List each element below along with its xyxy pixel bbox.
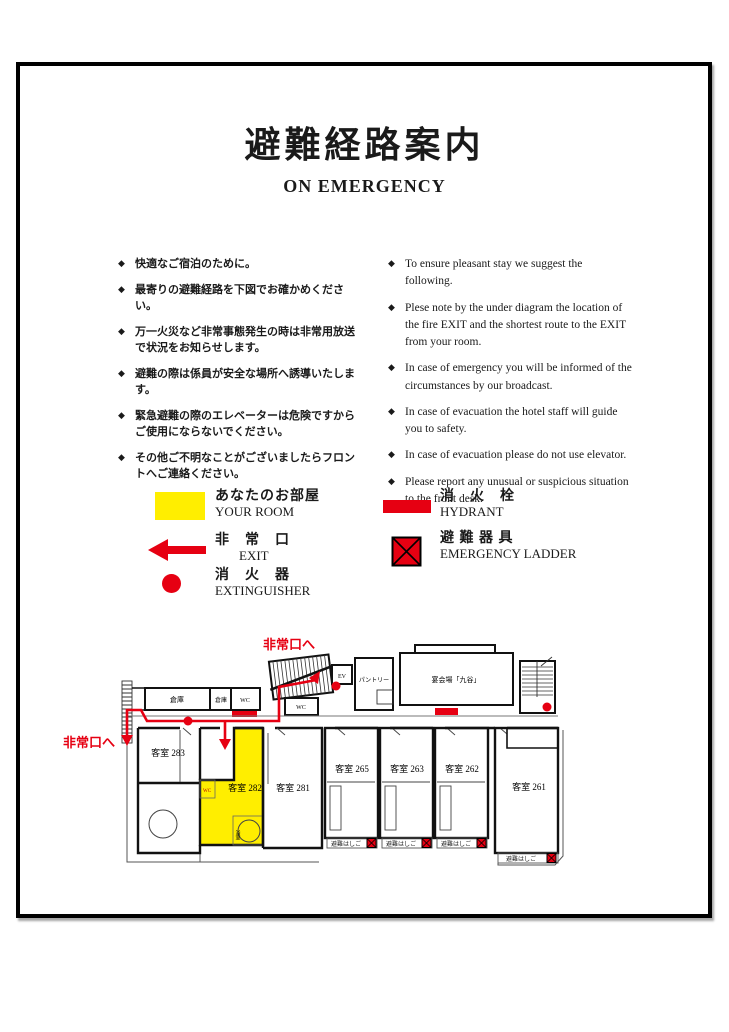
room-262-label: 客室 262 [445, 763, 479, 774]
room-263-label: 客室 263 [390, 763, 424, 774]
central-stairs [267, 654, 335, 700]
room-281-label: 客室 281 [276, 782, 310, 793]
notice-en-5: In case of evacuation please do not use … [388, 447, 632, 464]
notice-ja-4: 避難の際は係員が安全な場所へ誘導いたします。 [118, 366, 362, 399]
ladder-label-2: 避難はしご [386, 840, 416, 848]
ladder-platforms: 避難はしご 避難はしご 避難はしご 避難はしご [327, 838, 558, 863]
notice-ja-3: 万一火災など非常事態発生の時は非常用放送で状況をお知らせします。 [118, 324, 362, 357]
evacuation-poster: 避難経路案内 ON EMERGENCY 快適なご宿泊のために。 最寄りの避難経路… [0, 0, 729, 1032]
elevator-label: EV [338, 674, 347, 680]
page-title: 避難経路案内 [0, 116, 729, 168]
extinguisher-dot-ev [332, 682, 341, 691]
notices-english: To ensure pleasant stay we suggest the f… [388, 256, 632, 517]
ladder-box-icon-1 [367, 839, 376, 848]
room-282-label: 客室 282 [228, 782, 262, 793]
legend-extinguisher-ja: 消 火 器 [215, 568, 310, 583]
notices-japanese: 快適なご宿泊のために。 最寄りの避難経路を下図でお確かめください。 万一火災など… [118, 256, 362, 492]
notice-en-3: In case of emergency you will be informe… [388, 360, 632, 395]
page-subtitle: ON EMERGENCY [0, 176, 729, 197]
extinguisher-dot-right [543, 703, 552, 712]
storage2-label: 倉庫 [215, 696, 227, 704]
legend-ladder-en: EMERGENCY LADDER [440, 546, 576, 562]
exit-text-left: 非常口へ [63, 735, 115, 750]
hydrant-icon [383, 500, 431, 513]
storage1-label: 倉庫 [170, 695, 184, 704]
extinguisher-icon [162, 574, 181, 593]
legend-exit: 非 常 口 EXIT [215, 533, 290, 564]
legend-ladder-ja: 避 難 器 具 [440, 531, 576, 546]
banquet-hall [400, 645, 513, 705]
hydrant-bar-2 [435, 708, 458, 715]
pantry-label: パントリー [359, 677, 389, 684]
legend-your-room-swatch [155, 492, 205, 520]
room-265: 客室 265 [325, 728, 378, 838]
emergency-ladder-icon [391, 536, 422, 567]
route-arrow-left-exit [121, 735, 133, 746]
exit-arrow-shaft [166, 546, 206, 554]
exit-arrow-icon [148, 539, 206, 561]
room-262: 客室 262 [435, 728, 488, 838]
room-261: 客室 261 [495, 728, 558, 853]
room-281: 客室 281 [263, 728, 322, 848]
legend-your-room-en: YOUR ROOM [215, 504, 320, 520]
notice-ja-5: 緊急避難の際のエレベーターは危険ですからご使用にならないでください。 [118, 408, 362, 441]
pantry-closet [377, 690, 393, 704]
extinguisher-dot-corridor [184, 717, 193, 726]
legend-extinguisher: 消 火 器 EXTINGUISHER [215, 568, 310, 599]
ladder-label-3: 避難はしご [441, 840, 471, 848]
notice-ja-1: 快適なご宿泊のために。 [118, 256, 362, 273]
ladder-box-icon-4 [547, 854, 556, 863]
ladder-box-icon-3 [477, 839, 486, 848]
banquet-label: 宴会場「九谷」 [432, 675, 481, 684]
floor-plan: 倉庫 倉庫 WC EV WC パントリー 宴会場「九谷」 [55, 634, 575, 879]
notice-en-2: Plese note by the under diagram the loca… [388, 300, 632, 352]
room-261-label: 客室 261 [512, 781, 546, 792]
legend-extinguisher-en: EXTINGUISHER [215, 583, 310, 599]
legend-hydrant-en: HYDRANT [440, 504, 515, 520]
legend-hydrant-ja: 消 火 栓 [440, 489, 515, 504]
legend-ladder: 避 難 器 具 EMERGENCY LADDER [440, 531, 576, 562]
room-282-bath-label: 浴室 [235, 829, 241, 840]
ladder-label-4: 避難はしご [506, 855, 536, 863]
room-282-wc-label: WC [203, 789, 212, 794]
room-283: 客室 283 [138, 728, 200, 853]
wc-mid-label: WC [296, 705, 306, 711]
legend-exit-en: EXIT [239, 548, 290, 564]
room-263: 客室 263 [380, 728, 433, 838]
legend-exit-ja: 非 常 口 [215, 533, 290, 548]
ladder-box-icon-2 [422, 839, 431, 848]
exit-arrow-head [148, 539, 168, 561]
legend-your-room: あなたのお部屋 YOUR ROOM [215, 489, 320, 520]
notice-en-4: In case of evacuation the hotel staff wi… [388, 404, 632, 439]
legend-hydrant: 消 火 栓 HYDRANT [440, 489, 515, 520]
room-265-label: 客室 265 [335, 763, 369, 774]
wc-top-label: WC [240, 698, 250, 704]
route-arrow-to-room [219, 739, 231, 750]
notice-ja-2: 最寄りの避難経路を下図でお確かめください。 [118, 282, 362, 315]
notice-ja-6: その他ご不明なことがございましたらフロントへご連絡ください。 [118, 450, 362, 483]
pantry-room [355, 658, 393, 710]
notice-en-1: To ensure pleasant stay we suggest the f… [388, 256, 632, 291]
room-283-label: 客室 283 [151, 747, 185, 758]
legend-your-room-ja: あなたのお部屋 [215, 489, 320, 504]
exit-text-top: 非常口へ [263, 637, 315, 652]
ladder-label-1: 避難はしご [331, 840, 361, 848]
